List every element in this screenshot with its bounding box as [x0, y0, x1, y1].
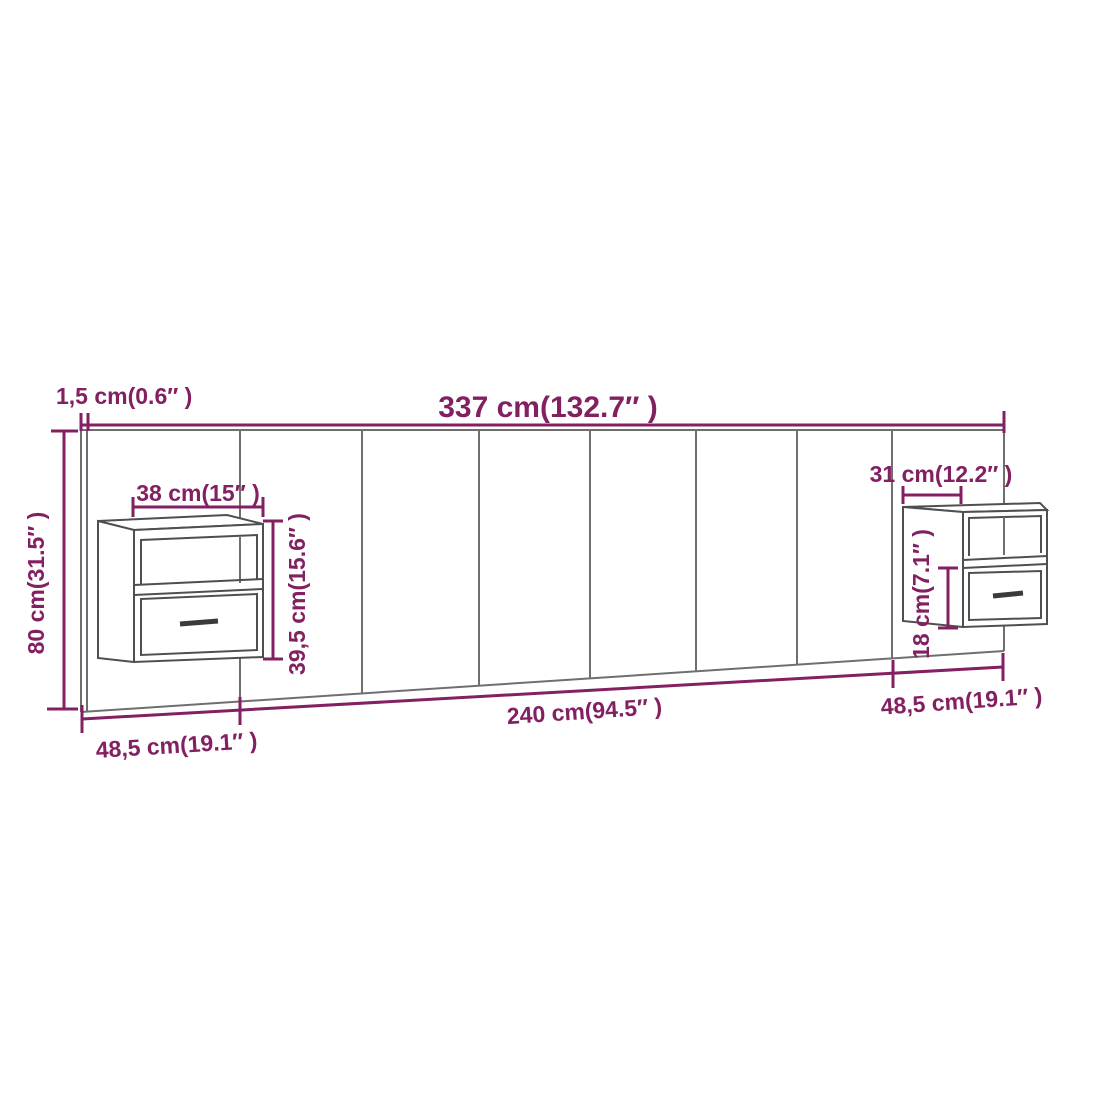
dim-left-cabinet-height: 39,5 cm(15.6″ ): [263, 513, 310, 675]
label-left-cabinet-width: 38 cm(15″ ): [136, 480, 260, 506]
label-right-cabinet-drawer-height: 18 cm(7.1″ ): [908, 529, 934, 659]
dim-overall-width: 337 cm(132.7″ ): [81, 391, 1004, 433]
right-cabinet-drawer-handle: [993, 593, 1023, 596]
dim-left-cabinet-width: 38 cm(15″ ): [133, 480, 263, 517]
furniture-dimension-diagram: 337 cm(132.7″ ) 1,5 cm(0.6″ ) 80 cm(31.5…: [0, 0, 1100, 1100]
label-left-cabinet-height: 39,5 cm(15.6″ ): [284, 513, 310, 675]
label-bottom-right-segment: 48,5 cm(19.1″ ): [880, 682, 1043, 719]
label-bottom-left-segment: 48,5 cm(19.1″ ): [95, 727, 258, 763]
label-panel-thickness: 1,5 cm(0.6″ ): [56, 383, 192, 409]
label-right-cabinet-depth: 31 cm(12.2″ ): [870, 461, 1013, 487]
dim-bottom-segments: 48,5 cm(19.1″ ) 240 cm(94.5″ ) 48,5 cm(1…: [82, 653, 1043, 763]
left-cabinet-side-face: [98, 521, 134, 662]
left-bedside-cabinet: [98, 515, 263, 662]
left-cabinet-drawer-handle: [180, 621, 218, 624]
diagram-svg: 337 cm(132.7″ ) 1,5 cm(0.6″ ) 80 cm(31.5…: [0, 0, 1100, 1100]
dim-overall-height: 80 cm(31.5″ ): [23, 431, 78, 709]
label-overall-width: 337 cm(132.7″ ): [438, 391, 658, 424]
label-bottom-middle-segment: 240 cm(94.5″ ): [506, 693, 663, 729]
label-overall-height: 80 cm(31.5″ ): [23, 512, 49, 655]
